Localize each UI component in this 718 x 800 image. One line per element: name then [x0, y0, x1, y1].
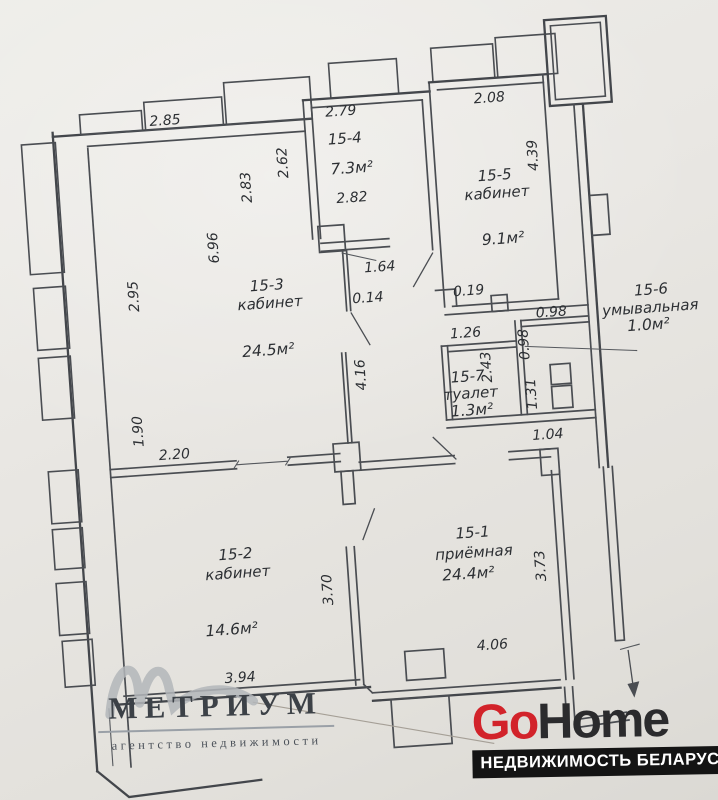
- gohome-logo-go: Go: [471, 693, 537, 750]
- room-15-1-name: приёмная: [435, 541, 514, 564]
- room-15-1-area: 24.4м²: [442, 563, 496, 585]
- dim-2-82: 2.82: [336, 189, 368, 207]
- room-15-4-area: 7.3м²: [330, 158, 374, 179]
- room-15-1-id: 15-1: [455, 522, 490, 542]
- dim-1-04: 1.04: [532, 426, 564, 444]
- metrium-logo: МЕТРИУМ агентство недвижимости: [95, 685, 337, 754]
- dim-2-62: 2.62: [274, 147, 292, 179]
- room-15-5-id: 15-5: [477, 165, 512, 185]
- room-15-2-name: кабинет: [205, 562, 272, 585]
- dim-2-95: 2.95: [125, 280, 143, 312]
- scanned-floor-plan-page: { "plan": { "rooms": { "r15_1": {"id": "…: [0, 0, 718, 800]
- dim-1-31: 1.31: [523, 378, 541, 410]
- room-15-3-name: кабинет: [237, 292, 304, 315]
- dim-2-79: 2.79: [325, 103, 357, 121]
- gohome-logo-tagline: НЕДВИЖИМОСТЬ БЕЛАРУСИ: [472, 746, 718, 779]
- dim-1-64: 1.64: [364, 258, 396, 276]
- dim-0-98-v: 0.98: [515, 328, 533, 360]
- dim-2-08: 2.08: [473, 89, 505, 107]
- dim-4-06: 4.06: [476, 636, 508, 654]
- dim-0-19: 0.19: [453, 282, 485, 300]
- room-15-7-area: 1.3м²: [450, 400, 494, 421]
- dim-2-83: 2.83: [238, 171, 256, 203]
- dim-6-96: 6.96: [205, 232, 223, 264]
- room-15-6-area: 1.0м²: [627, 314, 671, 335]
- room-15-6-id: 15-6: [633, 279, 668, 299]
- dim-3-73: 3.73: [532, 550, 550, 582]
- gohome-logo: GoHome НЕДВИЖИМОСТЬ БЕЛАРУСИ: [471, 692, 718, 779]
- dim-4-16: 4.16: [352, 359, 370, 391]
- dim-3-70: 3.70: [319, 573, 337, 605]
- dim-1-90: 1.90: [130, 415, 148, 447]
- dim-4-39: 4.39: [524, 139, 542, 171]
- room-15-5-name: кабинет: [464, 182, 531, 205]
- gohome-logo-home: Home: [537, 691, 669, 749]
- room-15-3-id: 15-3: [249, 275, 284, 295]
- dim-0-14: 0.14: [352, 289, 384, 307]
- room-15-3-area: 24.5м²: [242, 339, 296, 361]
- room-15-2-area: 14.6м²: [205, 619, 259, 641]
- dim-1-26: 1.26: [450, 324, 482, 342]
- metrium-logo-title: МЕТРИУМ: [95, 685, 336, 727]
- room-15-2-id: 15-2: [218, 544, 253, 564]
- dim-2-85: 2.85: [149, 112, 181, 130]
- entrance-arrow-icon: [620, 644, 644, 698]
- room-15-4-id: 15-4: [327, 128, 362, 148]
- dim-2-20: 2.20: [158, 446, 190, 464]
- dim-0-98-h: 0.98: [535, 303, 567, 321]
- room-15-5-area: 9.1м²: [481, 228, 525, 249]
- gohome-logo-title: GoHome: [471, 692, 718, 749]
